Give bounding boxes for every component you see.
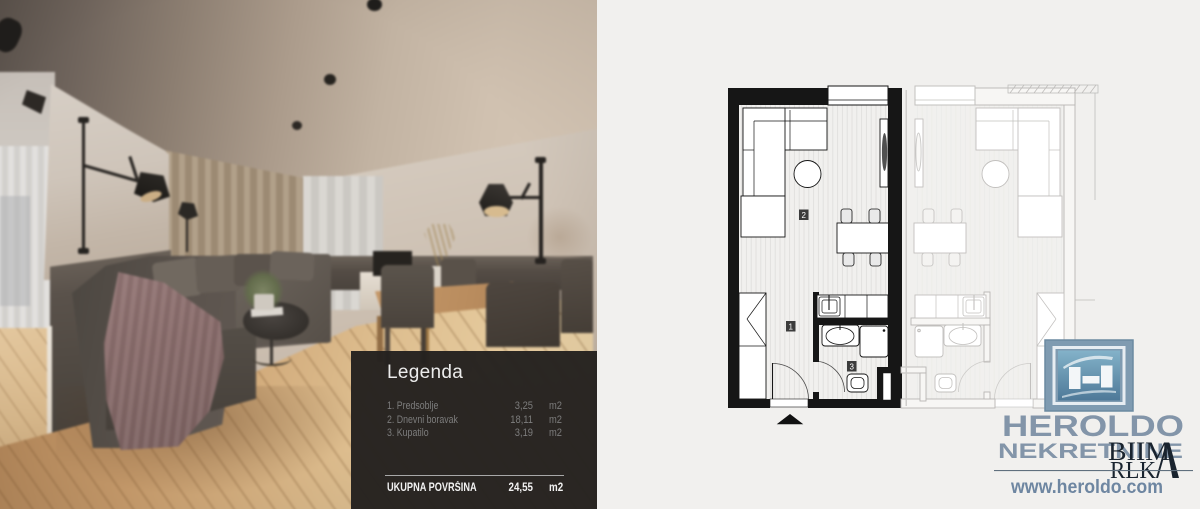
svg-text:3: 3 bbox=[849, 363, 854, 372]
svg-text:1: 1 bbox=[788, 323, 793, 332]
svg-text:www.heroldo.com: www.heroldo.com bbox=[1010, 476, 1163, 498]
svg-text:2: 2 bbox=[801, 211, 806, 220]
